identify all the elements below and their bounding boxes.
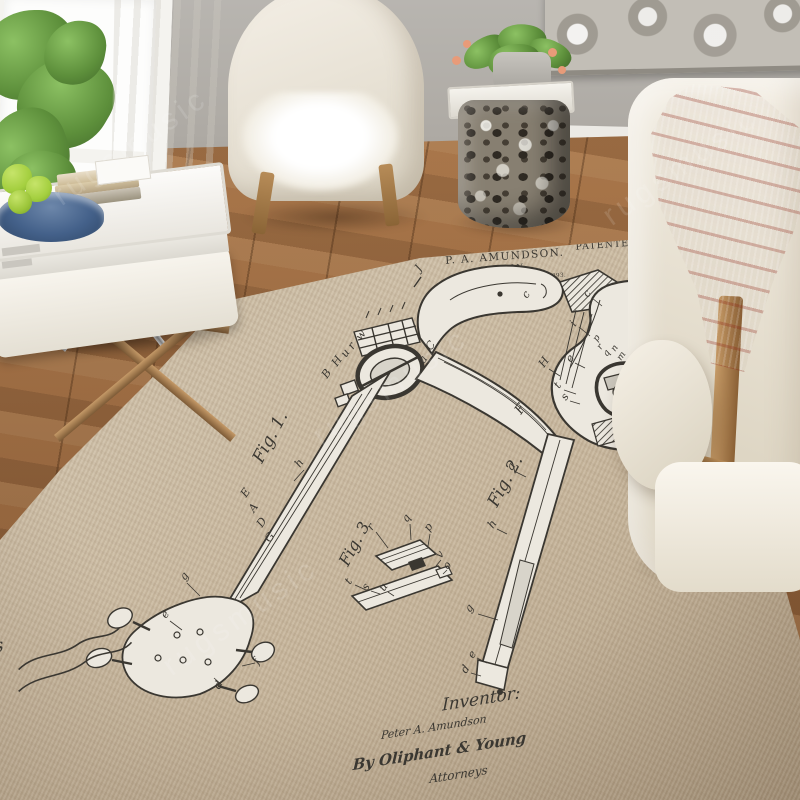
- part-label: E: [237, 486, 253, 501]
- peach-flower: [463, 40, 471, 48]
- figure-3-drawing: r q p v o t s u Fig. 3: [334, 511, 454, 610]
- part-label: p: [421, 520, 436, 533]
- part-label: g: [462, 601, 477, 614]
- peach-flower: [452, 56, 461, 65]
- part-label: i: [567, 318, 580, 328]
- green-pear: [8, 190, 32, 214]
- part-label: t: [342, 575, 356, 587]
- part-label: D: [253, 515, 269, 531]
- attorneys-label: Attorneys: [428, 763, 487, 786]
- part-label: J: [411, 262, 426, 275]
- witnesses-heading: Witnesses: [0, 634, 5, 680]
- part-label: e: [465, 648, 480, 661]
- part-label: h: [292, 456, 307, 469]
- witness-signature-scribbles: [10, 626, 136, 691]
- figure-1-label: Fig. 1.: [248, 408, 292, 467]
- figure-2-label: Fig. 2.: [483, 452, 527, 511]
- peach-flower: [558, 66, 566, 74]
- part-label: d: [458, 662, 473, 675]
- part-label: H: [535, 354, 552, 370]
- abstract-wall-art: [545, 0, 800, 76]
- witnesses-block: Witnesses: [0, 626, 136, 691]
- armchair-seat-cushion: [655, 462, 800, 592]
- part-label: g: [177, 569, 192, 582]
- part-label: v: [433, 548, 448, 561]
- part-label: A: [245, 501, 261, 516]
- inventor-heading: Inventor:: [441, 683, 521, 716]
- metal-drum-stool: [458, 100, 570, 228]
- attorney-signature: By Oliphant & Young: [351, 728, 527, 774]
- figure-3-label: Fig. 3: [334, 519, 373, 570]
- inventor-block: Inventor: Peter A. Amundson By Oliphant …: [351, 683, 527, 786]
- product-photo-violin-patent-rug: No. 596,790. P. A. AMUNDSON. PATENTED AU…: [0, 0, 800, 800]
- part-label: q: [399, 511, 414, 524]
- part-label: B: [318, 367, 334, 382]
